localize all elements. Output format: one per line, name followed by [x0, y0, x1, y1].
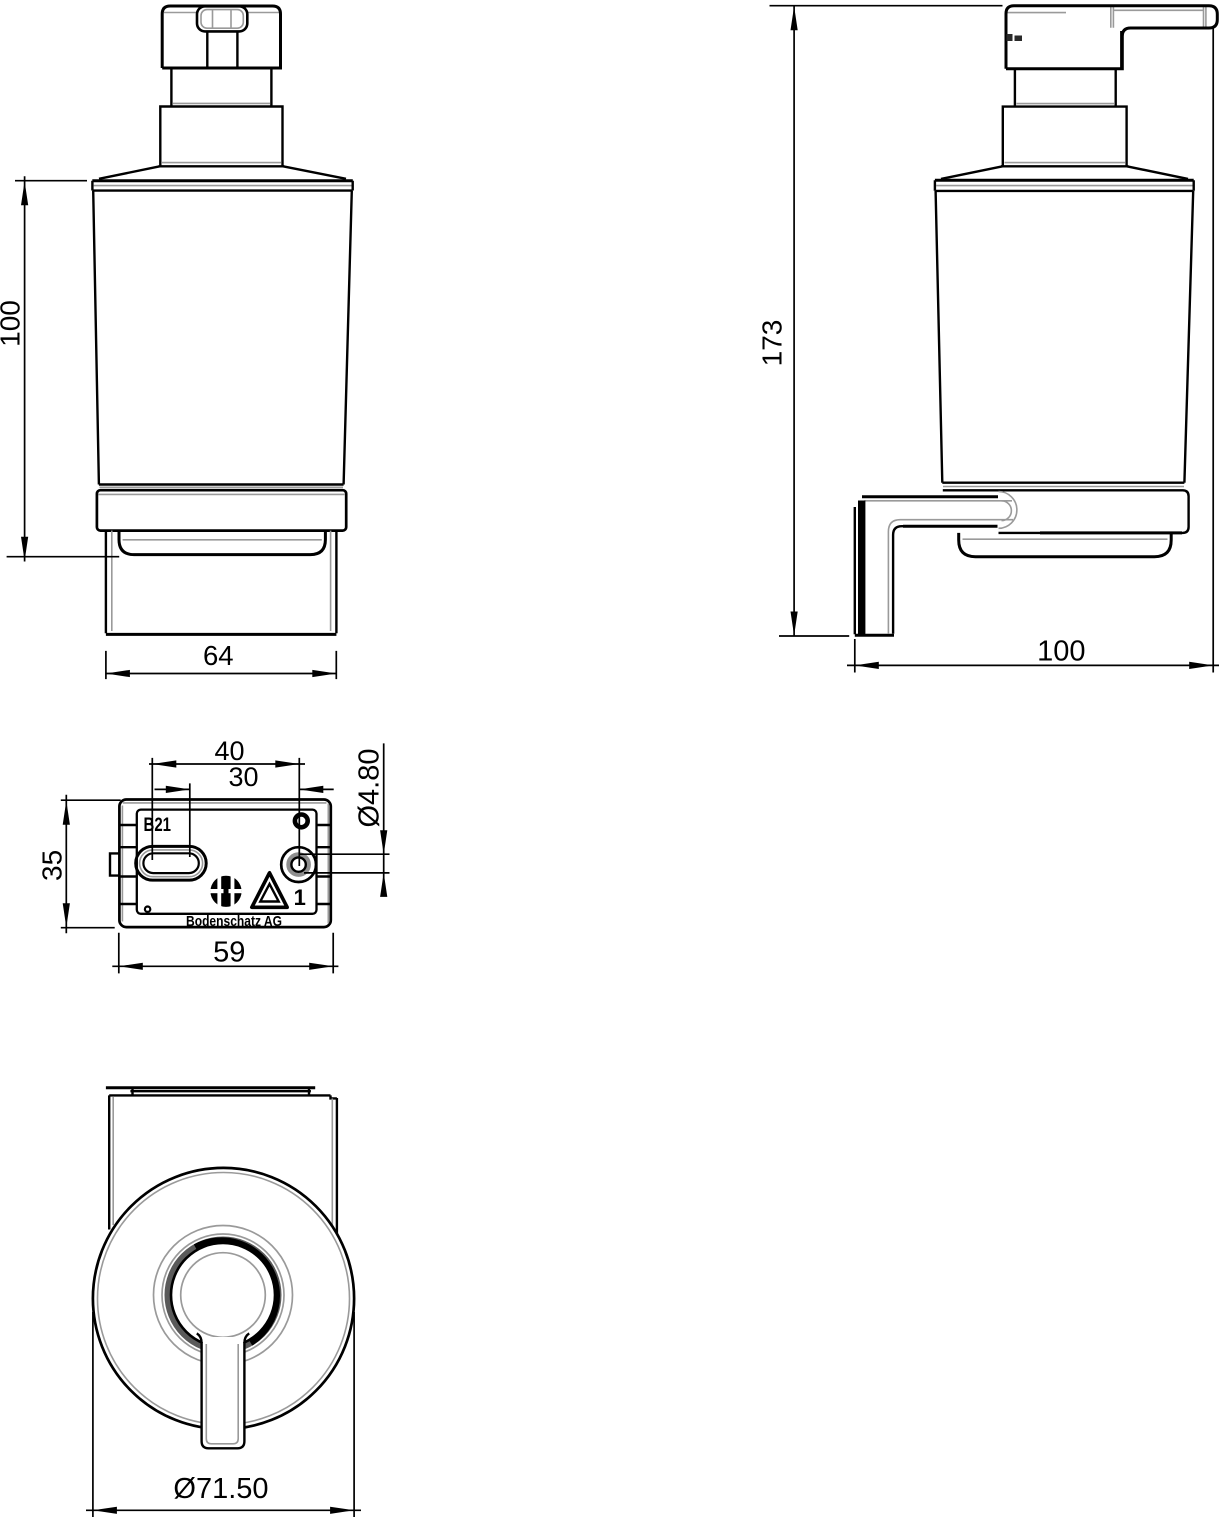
- svg-text:59: 59: [213, 937, 245, 969]
- svg-text:Bodenschatz AG: Bodenschatz AG: [186, 913, 282, 930]
- svg-text:100: 100: [1037, 636, 1085, 668]
- svg-text:1: 1: [294, 885, 306, 910]
- svg-text:100: 100: [0, 300, 26, 347]
- svg-text:64: 64: [203, 640, 234, 671]
- svg-text:Ø71.50: Ø71.50: [173, 1473, 268, 1505]
- svg-text:Ø4.80: Ø4.80: [354, 749, 386, 828]
- svg-text:35: 35: [36, 850, 67, 881]
- svg-text:173: 173: [757, 320, 788, 367]
- svg-text:30: 30: [228, 762, 258, 792]
- svg-text:B21: B21: [144, 815, 172, 836]
